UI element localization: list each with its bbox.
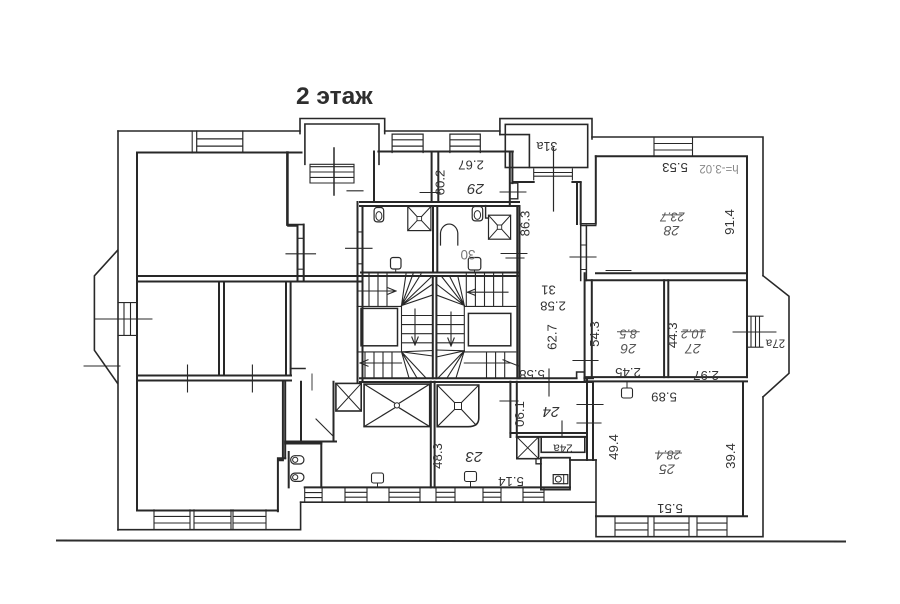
svg-text:28.4: 28.4 — [656, 448, 681, 462]
svg-text:27а: 27а — [765, 337, 785, 349]
svg-text:24а: 24а — [553, 442, 573, 454]
svg-text:10.2: 10.2 — [681, 327, 705, 341]
svg-text:49.4: 49.4 — [606, 434, 621, 460]
svg-text:5.58: 5.58 — [519, 367, 545, 382]
svg-text:25: 25 — [659, 462, 676, 478]
svg-text:23.7: 23.7 — [659, 210, 685, 224]
svg-text:54.3: 54.3 — [587, 321, 602, 347]
svg-text:44.3: 44.3 — [665, 322, 680, 348]
svg-text:31а: 31а — [537, 139, 558, 153]
svg-text:2 этаж: 2 этаж — [296, 83, 373, 110]
svg-text:8.5: 8.5 — [620, 327, 637, 341]
svg-text:39.4: 39.4 — [723, 443, 738, 469]
svg-text:5.14: 5.14 — [498, 474, 524, 489]
svg-text:23: 23 — [465, 448, 483, 465]
svg-text:h=-3.02: h=-3.02 — [699, 162, 738, 174]
svg-text:24: 24 — [543, 403, 561, 420]
svg-text:5.89: 5.89 — [651, 390, 677, 405]
svg-text:31: 31 — [541, 283, 555, 298]
svg-text:91.4: 91.4 — [722, 209, 737, 235]
svg-text:30: 30 — [460, 247, 475, 262]
svg-text:26: 26 — [620, 341, 637, 357]
svg-text:2.58: 2.58 — [540, 299, 566, 314]
svg-text:5.51: 5.51 — [657, 501, 683, 516]
svg-text:86.3: 86.3 — [518, 211, 533, 237]
svg-text:2.45: 2.45 — [615, 365, 641, 380]
svg-text:48.3: 48.3 — [430, 443, 445, 469]
svg-text:29: 29 — [467, 180, 485, 197]
svg-text:60.2: 60.2 — [433, 170, 448, 196]
svg-text:28: 28 — [664, 223, 681, 239]
svg-text:2.97: 2.97 — [693, 368, 719, 383]
svg-text:5.53: 5.53 — [662, 160, 688, 175]
svg-text:2.67: 2.67 — [458, 158, 484, 173]
svg-text:06.1: 06.1 — [512, 401, 527, 427]
svg-text:62.7: 62.7 — [545, 324, 560, 350]
svg-text:27: 27 — [684, 341, 702, 357]
